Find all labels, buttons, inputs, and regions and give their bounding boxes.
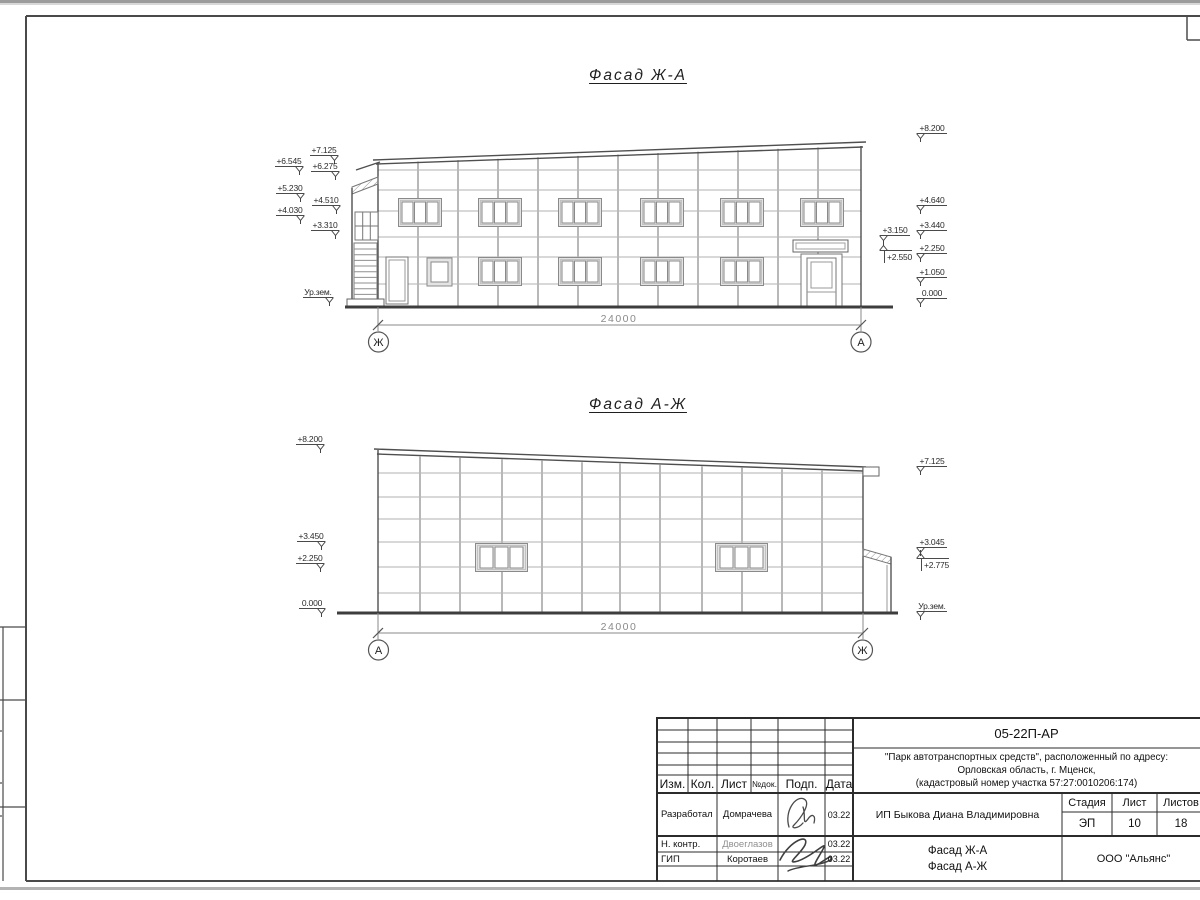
elevation-mark: +3.450 (297, 531, 325, 542)
elevation-tick-icon (916, 298, 925, 307)
elevation-value: +3.150 (880, 225, 910, 235)
project-line-1: "Парк автотранспортных средств", располо… (885, 751, 1168, 764)
elevation-value: 0.000 (917, 288, 947, 298)
elevation-tick-icon (916, 133, 925, 142)
elevation-tick-icon (916, 466, 925, 475)
elevation-value: +7.125 (917, 456, 947, 466)
elevation-tick-icon (316, 563, 325, 572)
elevation-tick-icon (317, 608, 326, 617)
tb-header-ndok: №док. (751, 775, 778, 793)
elevation-value: +2.550 (884, 251, 912, 263)
elevation-value: +2.250 (917, 243, 947, 253)
elevation-mark: +4.030 (276, 205, 304, 216)
elevation-tick-icon (295, 166, 304, 175)
elevation-tick-icon (879, 242, 888, 251)
axis-letter: Ж (373, 337, 383, 349)
axis-letter: А (375, 645, 383, 657)
tb-role-ncontrol: Н. контр. (658, 836, 719, 852)
elevation-mark: +7.125 (917, 456, 947, 467)
elevation-value: +7.125 (310, 145, 338, 155)
elevation-tick-icon (316, 444, 325, 453)
elevation-mark: +4.640 (917, 195, 947, 206)
tb-stage-value: ЭП (1062, 812, 1112, 836)
elevation-value: Ур.зем. (303, 287, 333, 297)
sheet-title-line-2: Фасад А-Ж (928, 859, 987, 875)
elevation-value: +3.450 (297, 531, 325, 541)
elevation-value: +4.510 (312, 195, 340, 205)
facade-2-drawing: 24000 А Ж (337, 449, 898, 660)
tb-date-gip: 03.22 (825, 852, 853, 866)
facade-2-leanto (863, 549, 891, 613)
elevation-value: +2.250 (296, 553, 324, 563)
facade-1-dimension: 24000 (373, 307, 866, 331)
elevation-mark: +2.250 (296, 553, 324, 564)
side-stamp-cut (0, 627, 26, 881)
tb-name-ncontrol: Двоеглазов (717, 836, 778, 852)
elevation-mark: +2.775 (917, 558, 949, 572)
elevation-value: +3.310 (311, 220, 339, 230)
tb-document-code: 05-22П-АР (853, 718, 1200, 748)
elevation-mark: +8.200 (917, 123, 947, 134)
axis-letter: Ж (857, 645, 867, 657)
tb-header-sheet: Лист (1112, 793, 1157, 812)
elevation-value: 0.000 (299, 598, 325, 608)
dimension-label: 24000 (601, 313, 638, 325)
sheet-title-line-1: Фасад Ж-А (928, 843, 987, 859)
elevation-tick-icon (296, 193, 305, 202)
dimension-label: 24000 (601, 621, 638, 633)
elevation-tick-icon (325, 297, 334, 306)
elevation-mark: +5.230 (276, 183, 304, 194)
tb-sheet-title: Фасад Ж-А Фасад А-Ж (853, 836, 1062, 881)
elevation-mark: Ур.зем. (917, 601, 947, 612)
tb-sheet-number: 10 (1112, 812, 1157, 836)
tb-header-podp: Подп. (778, 775, 825, 793)
tb-project-description: "Парк автотранспортных средств", располо… (853, 748, 1200, 793)
tb-role-gip: ГИП (658, 852, 719, 866)
elevation-mark: +2.250 (917, 243, 947, 254)
elevation-tick-icon (332, 205, 341, 214)
elevation-tick-icon (916, 205, 925, 214)
elevation-tick-icon (916, 230, 925, 239)
tb-header-stage: Стадия (1062, 793, 1112, 812)
tb-sheet-total: 18 (1157, 812, 1200, 836)
facade-2-dimension: 24000 (373, 613, 868, 639)
elevation-value: +5.230 (276, 183, 304, 193)
elevation-tick-icon (317, 541, 326, 550)
tb-date-ncontrol: 03.22 (825, 836, 853, 852)
axis-bubbles-facade-2: А Ж (369, 640, 873, 660)
elevation-tick-icon (916, 550, 925, 559)
elevation-mark: 0.000 (917, 288, 947, 299)
elevation-value: +6.545 (275, 156, 303, 166)
elevation-value: +4.640 (917, 195, 947, 205)
elevation-tick-icon (296, 215, 305, 224)
elevation-value: +3.045 (917, 537, 947, 547)
facade-2-outline (374, 449, 879, 613)
tb-role-developer: Разработал (658, 793, 719, 836)
facade-2-mullions (420, 457, 822, 614)
elevation-tick-icon (331, 230, 340, 239)
elevation-mark: +4.510 (312, 195, 340, 206)
tb-company: ООО "Альянс" (1062, 836, 1200, 881)
tb-client: ИП Быкова Диана Владимировна (853, 793, 1062, 836)
tb-header-list: Лист (717, 775, 751, 793)
elevation-mark: +6.545 (275, 156, 303, 167)
facade-2-title: Фасад А-Ж (553, 396, 723, 414)
tb-header-kol: Кол. (688, 775, 717, 793)
elevation-value: +2.775 (921, 559, 949, 571)
elevation-tick-icon (916, 277, 925, 286)
elevation-mark: 0.000 (299, 598, 325, 609)
elevation-mark: +3.440 (917, 220, 947, 231)
elevation-value: +1.050 (917, 267, 947, 277)
elevation-value: +3.440 (917, 220, 947, 230)
facade-1-title: Фасад Ж-А (553, 67, 723, 85)
elevation-mark: +2.550 (880, 250, 912, 264)
elevation-tick-icon (916, 611, 925, 620)
elevation-value: +8.200 (917, 123, 947, 133)
tb-date-developer: 03.22 (825, 793, 853, 836)
tb-header-data: Дата (825, 775, 853, 793)
elevation-tick-icon (916, 253, 925, 262)
axis-letter: А (857, 337, 865, 349)
elevation-mark: +6.275 (311, 161, 339, 172)
tb-name-gip: Коротаев (717, 852, 778, 866)
tb-name-developer: Домрачева (717, 793, 778, 836)
facade-1-drawing: 24000 Ж А (345, 142, 893, 352)
facade-1-left-door (386, 257, 408, 304)
elevation-mark: +3.150 (880, 225, 910, 236)
tb-header-izm: Изм. (657, 775, 688, 793)
elevation-mark: Ур.зем. (303, 287, 333, 298)
elevation-value: +6.275 (311, 161, 339, 171)
facade-1-entrance (793, 240, 848, 306)
elevation-mark: +3.045 (917, 537, 947, 548)
elevation-mark: +7.125 (310, 145, 338, 156)
frame-corner-box (1187, 16, 1200, 40)
facade-1-windows-upper (399, 199, 844, 227)
drawing-sheet: 24000 Ж А (0, 0, 1200, 900)
project-line-2: Орловская область, г. Мценск, (958, 764, 1096, 777)
elevation-value: +8.200 (296, 434, 324, 444)
project-line-3: (кадастровый номер участка 57:27:0010206… (916, 777, 1138, 790)
elevation-mark: +3.310 (311, 220, 339, 231)
elevation-mark: +8.200 (296, 434, 324, 445)
elevation-value: +4.030 (276, 205, 304, 215)
elevation-tick-icon (331, 171, 340, 180)
tb-header-sheets: Листов (1157, 793, 1200, 812)
elevation-value: Ур.зем. (917, 601, 947, 611)
facade-1-windows-lower (427, 258, 764, 287)
axis-bubbles-facade-1: Ж А (369, 332, 872, 352)
elevation-mark: +1.050 (917, 267, 947, 278)
